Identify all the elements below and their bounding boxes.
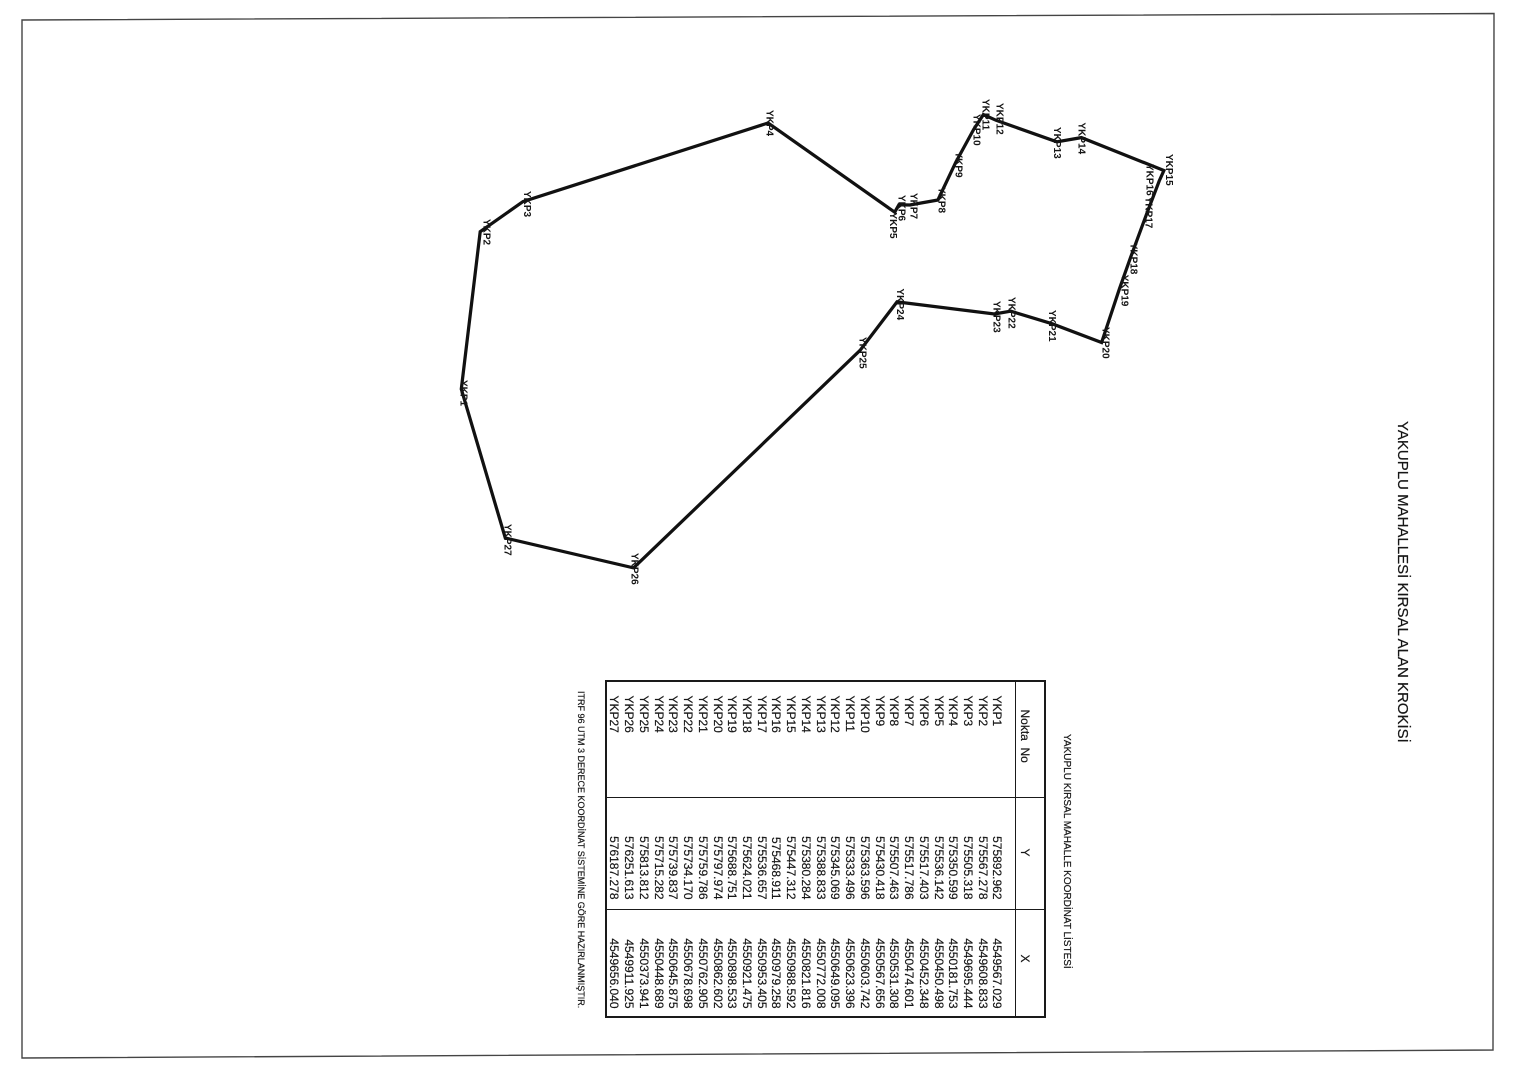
svg-text:YKP18: YKP18 xyxy=(1128,243,1139,275)
svg-text:YKP24: YKP24 xyxy=(894,289,905,321)
svg-text:YKP3: YKP3 xyxy=(521,191,532,218)
svg-text:YKP23: YKP23 xyxy=(991,301,1002,333)
svg-text:YKP26: YKP26 xyxy=(629,553,640,585)
svg-text:YKP20: YKP20 xyxy=(1100,327,1111,359)
svg-text:YKP13: YKP13 xyxy=(1051,127,1062,159)
svg-text:YKP11: YKP11 xyxy=(980,99,991,131)
svg-text:YKP14: YKP14 xyxy=(1076,123,1087,155)
svg-text:YKP2: YKP2 xyxy=(481,219,492,246)
svg-text:YKP6: YKP6 xyxy=(896,195,907,222)
svg-text:YKP25: YKP25 xyxy=(857,337,868,369)
svg-text:YKP27: YKP27 xyxy=(502,524,513,556)
svg-text:YKP9: YKP9 xyxy=(953,152,964,179)
svg-text:YKP15: YKP15 xyxy=(1163,154,1174,186)
svg-text:YKP4: YKP4 xyxy=(764,110,775,137)
svg-text:YKP1: YKP1 xyxy=(458,380,469,407)
svg-text:YKP17: YKP17 xyxy=(1143,197,1154,229)
svg-text:YKP12: YKP12 xyxy=(994,103,1005,135)
svg-text:YKP22: YKP22 xyxy=(1006,297,1017,329)
svg-text:YKP19: YKP19 xyxy=(1119,275,1130,307)
svg-text:YKP16: YKP16 xyxy=(1144,164,1155,196)
svg-text:YKP21: YKP21 xyxy=(1046,310,1057,342)
svg-text:YKP7: YKP7 xyxy=(908,193,919,220)
svg-text:YKP8: YKP8 xyxy=(936,187,947,214)
